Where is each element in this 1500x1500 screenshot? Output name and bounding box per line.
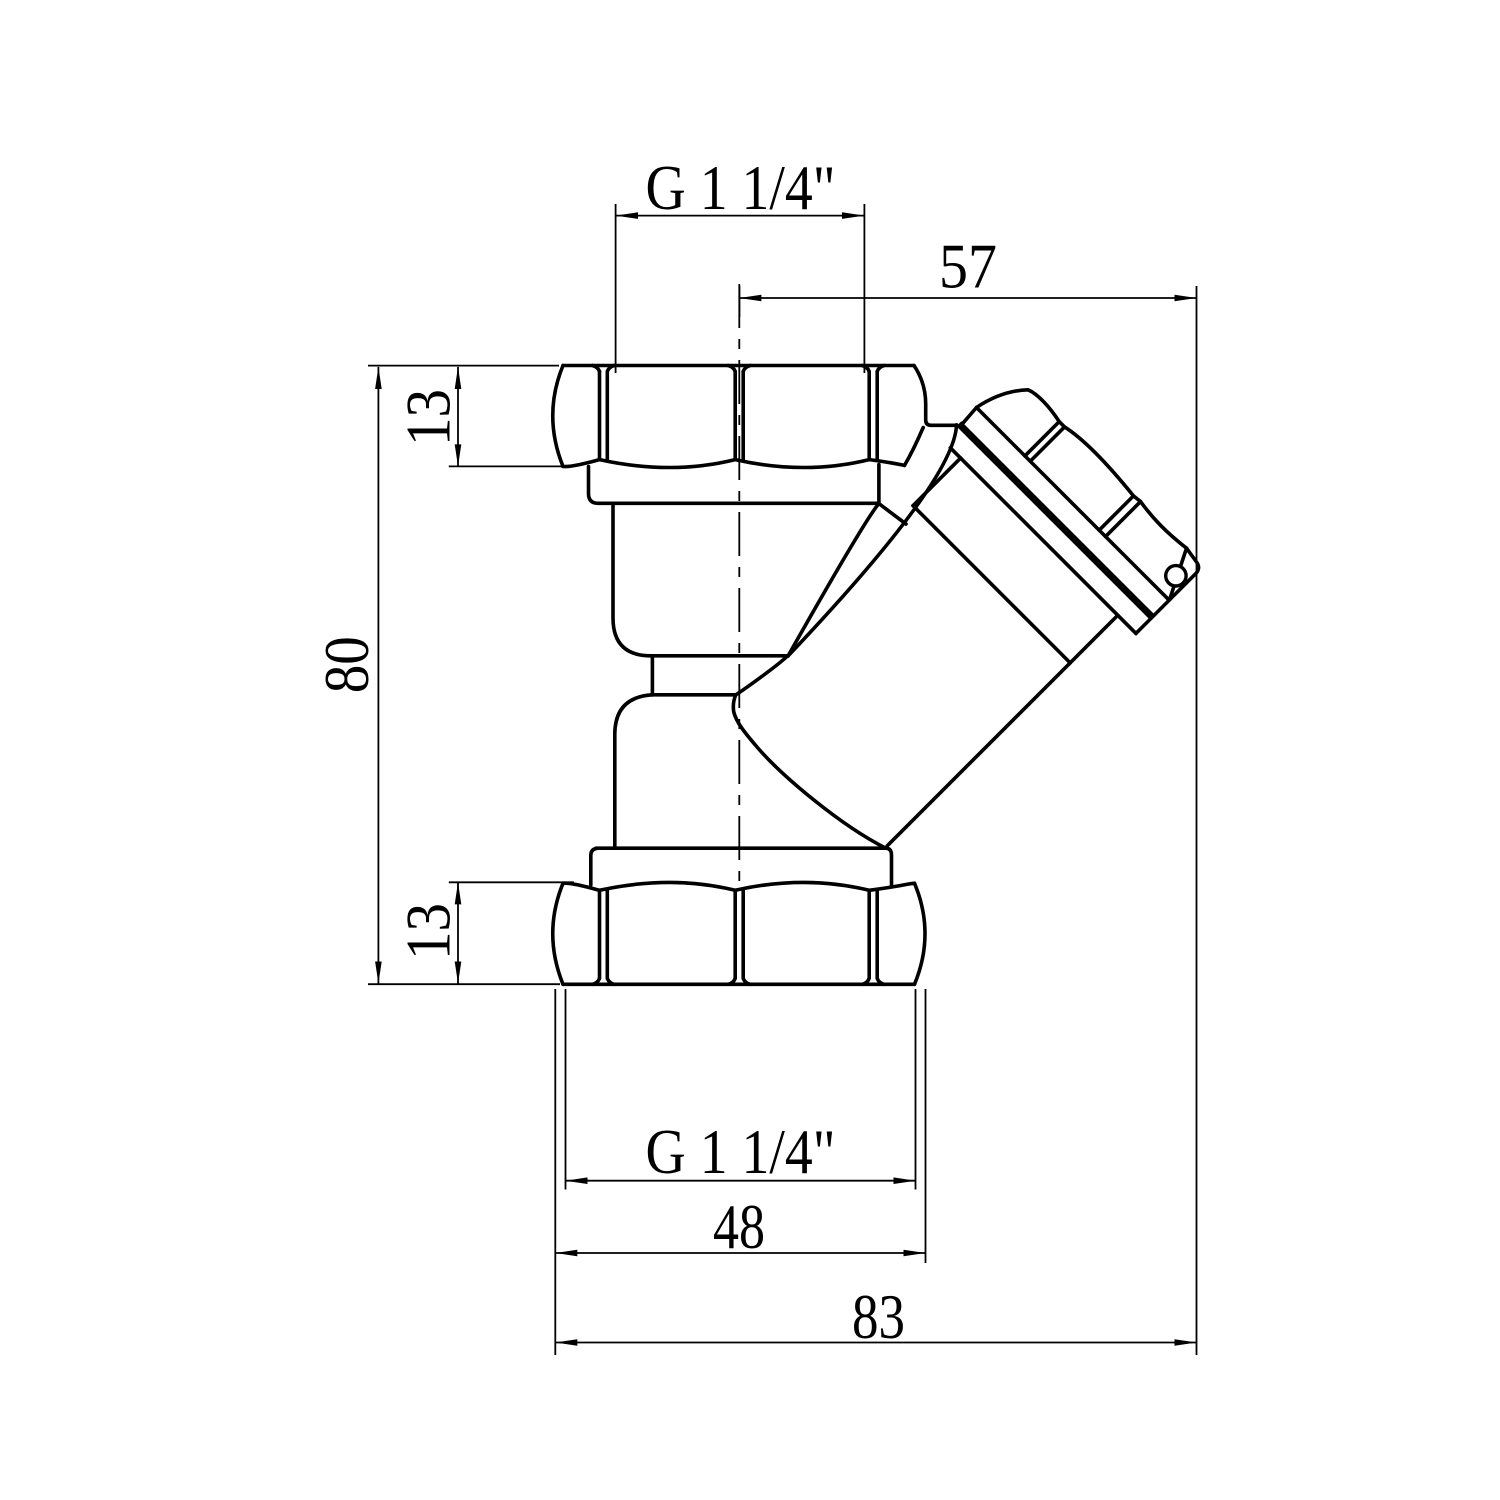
svg-text:80: 80 — [312, 636, 382, 693]
svg-text:83: 83 — [852, 1282, 905, 1352]
svg-text:48: 48 — [713, 1192, 765, 1262]
svg-text:G 1 1/4": G 1 1/4" — [646, 1117, 836, 1187]
svg-text:57: 57 — [939, 232, 997, 302]
svg-text:13: 13 — [394, 903, 464, 960]
svg-text:G 1 1/4": G 1 1/4" — [646, 153, 836, 223]
svg-text:13: 13 — [394, 389, 464, 446]
